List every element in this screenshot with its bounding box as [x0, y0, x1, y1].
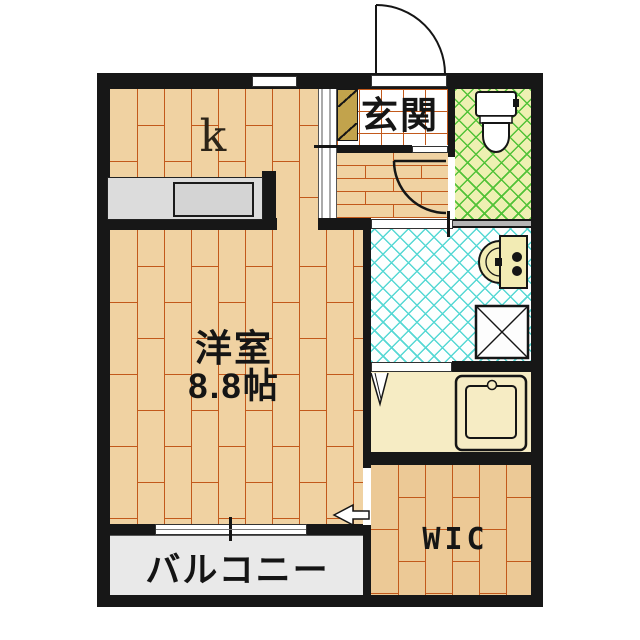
plank-line [218, 302, 245, 303]
kitchen-label: k [193, 114, 233, 160]
wall-hall-bottom [318, 218, 371, 230]
plank-line [299, 410, 326, 411]
plank-line [272, 302, 299, 303]
plank-line [299, 266, 326, 267]
plank-line [398, 465, 399, 597]
washroom-sliding-door [371, 219, 453, 229]
plank-line [506, 465, 507, 597]
plank-line [371, 529, 398, 530]
plank-line [326, 302, 353, 303]
toilet-floor [455, 89, 531, 219]
plank-line [245, 266, 272, 267]
plank-line [299, 482, 326, 483]
plank-line [137, 266, 164, 267]
plank-line [506, 497, 531, 498]
wall-right [531, 73, 543, 607]
kitchen-sink-unit [173, 182, 254, 217]
floor-plan: k 玄関 洋室 8.8帖 バルコニー WIC [0, 0, 640, 640]
wic-door-opening [363, 468, 371, 525]
plank-line [299, 197, 318, 198]
plank-line [353, 482, 363, 483]
plank-line [353, 338, 363, 339]
plank-line [337, 165, 448, 166]
plank-line [326, 374, 353, 375]
plank-line [245, 410, 272, 411]
plank-line [371, 593, 398, 594]
plank-line [479, 593, 506, 594]
washroom-floor [371, 227, 531, 362]
plank-line [365, 191, 366, 204]
wall-washroom-bathroom [452, 361, 531, 372]
plank-line [337, 191, 448, 192]
plank-line [272, 161, 299, 162]
wall-entrance-bottom [337, 145, 412, 153]
plank-line [421, 191, 422, 204]
plank-line [245, 482, 272, 483]
plank-line [218, 518, 245, 519]
plank-line [299, 125, 318, 126]
plank-line [137, 230, 138, 524]
plank-line [110, 518, 137, 519]
plank-line [398, 561, 425, 562]
entrance-label: 玄関 [352, 97, 448, 136]
western-room-name: 洋室 [148, 330, 320, 369]
western-room-label: 洋室 8.8帖 [148, 330, 320, 406]
plank-line [326, 518, 353, 519]
wall-toilet-left [448, 73, 455, 157]
entry-door-swing [376, 5, 445, 74]
plank-line [110, 446, 137, 447]
plank-line [452, 561, 479, 562]
plank-line [421, 165, 422, 178]
balcony-label: バルコニー [115, 553, 360, 590]
entrance-step [412, 146, 448, 153]
wall-center-vertical [363, 218, 371, 607]
sliding-partition [318, 89, 337, 218]
wall-top [97, 73, 543, 89]
plank-line [353, 266, 363, 267]
wic-label: WIC [408, 524, 503, 556]
balcony-sliding-window [155, 524, 307, 535]
plank-line [506, 561, 531, 562]
plank-line [137, 482, 164, 483]
plank-line [137, 125, 164, 126]
plank-line [191, 266, 218, 267]
plank-line [245, 125, 272, 126]
plank-line [110, 302, 137, 303]
plank-line [137, 410, 164, 411]
plank-line [299, 89, 300, 230]
plank-line [191, 410, 218, 411]
plank-line [353, 230, 354, 524]
wall-kitchen-stub [262, 171, 276, 230]
kitchen-window [252, 76, 297, 87]
plank-line [393, 152, 394, 165]
plank-line [326, 230, 327, 524]
plank-line [365, 165, 366, 178]
plank-line [191, 482, 218, 483]
plank-line [272, 518, 299, 519]
plank-line [393, 178, 394, 191]
plank-line [326, 446, 353, 447]
bathroom-sliding-door [371, 362, 452, 372]
plank-line [425, 593, 452, 594]
plank-line [164, 518, 191, 519]
plank-line [398, 497, 425, 498]
plank-line [110, 374, 137, 375]
plank-line [421, 217, 422, 218]
plank-line [452, 497, 479, 498]
plank-line [110, 161, 137, 162]
plank-line [164, 302, 191, 303]
plank-line [353, 410, 363, 411]
plank-line [164, 161, 191, 162]
wall-bathroom-wic [363, 452, 540, 465]
plank-line [393, 204, 394, 217]
plank-line [164, 446, 191, 447]
bathroom-floor [371, 372, 531, 452]
entry-door-threshold [371, 75, 447, 87]
wall-bottom [97, 595, 543, 607]
plank-line [272, 446, 299, 447]
hallway-floor [337, 152, 448, 218]
wall-toilet-washroom [453, 219, 531, 228]
western-room-size: 8.8帖 [148, 369, 320, 406]
plank-line [218, 446, 245, 447]
